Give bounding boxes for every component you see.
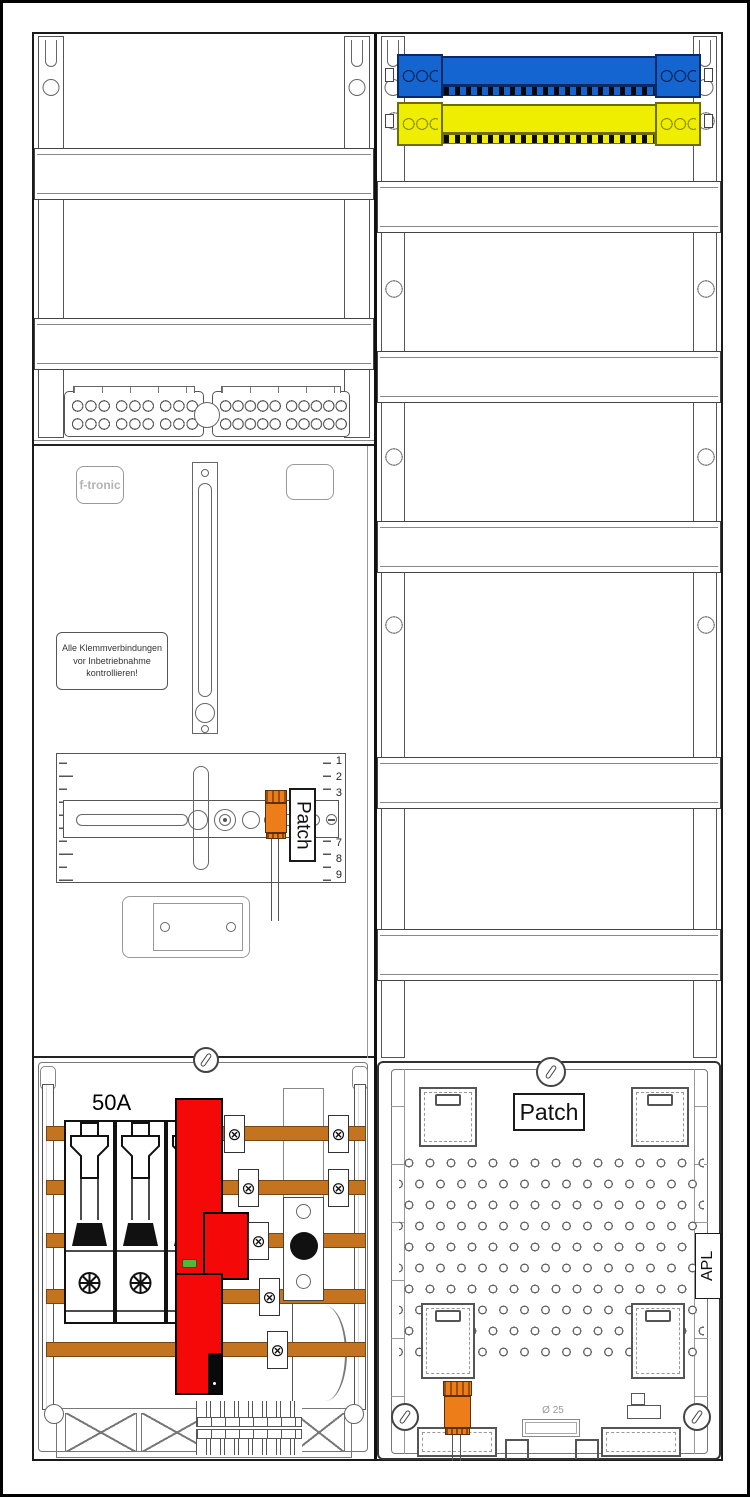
terminal-hole-group <box>115 397 155 433</box>
din-rail <box>34 318 374 370</box>
cable-cutout-tall <box>631 1303 685 1379</box>
patch-wire <box>271 839 272 921</box>
cable-cutout-tall <box>421 1303 475 1379</box>
terminal-hole-group <box>159 397 199 433</box>
right-field: Patch APL Ø 25 <box>377 34 721 1459</box>
apl-terminal-block <box>443 1381 472 1443</box>
brand-label: f-tronic <box>79 478 120 492</box>
terminal-hole-group <box>71 397 111 433</box>
gland-hole <box>290 1232 318 1260</box>
diameter-label: Ø 25 <box>525 1405 581 1416</box>
apl-compartment: Patch APL Ø 25 <box>377 1061 721 1460</box>
meter-cabinet-technical-drawing: f-tronic Alle Klemmverbindungen vor Inbe… <box>0 0 750 1497</box>
left-field: f-tronic Alle Klemmverbindungen vor Inbe… <box>34 34 377 1459</box>
sls-switch-lower <box>175 1273 223 1395</box>
apl-wire <box>452 1435 453 1461</box>
ruler-number: 9 <box>336 870 342 881</box>
bracket-hole <box>201 725 209 733</box>
diameter-cutout <box>522 1419 580 1437</box>
screw-terminal-icon <box>238 1169 259 1207</box>
meter-mounting-plate: 1 2 3 7 8 9 <box>56 753 346 883</box>
din-rail <box>377 351 721 403</box>
busbar-clip <box>385 68 394 82</box>
screw-terminal-icon <box>224 1115 245 1153</box>
mounting-rail-left <box>38 36 64 438</box>
corner-latch <box>683 1403 711 1431</box>
screw-terminal-icon <box>259 1278 280 1316</box>
warning-text-line3: kontrollieren! <box>86 667 138 680</box>
warning-text-line2: vor Inbetriebnahme <box>73 655 151 668</box>
cover-hole <box>226 922 236 932</box>
terminal-block-right <box>212 391 350 437</box>
din-rail <box>34 148 374 200</box>
blank-plate <box>286 464 334 500</box>
bracket-detail <box>627 1393 663 1419</box>
fixing-hole <box>194 402 220 428</box>
busbar-clip <box>704 114 713 128</box>
shelf-line <box>34 440 374 441</box>
pe-busbar-yellow <box>397 100 701 148</box>
cable-cutout <box>631 1087 689 1147</box>
connection-compartment: 50A <box>34 1058 374 1459</box>
mounting-rail-right <box>344 36 370 438</box>
cable-gland <box>283 1197 324 1301</box>
busbar-endcap <box>655 102 701 146</box>
din-rail <box>377 521 721 573</box>
panel-edge-line <box>367 446 368 1058</box>
ruler-number: 3 <box>336 788 342 799</box>
left-top-section <box>34 34 374 446</box>
ruler-number: 2 <box>336 772 342 783</box>
din-rail <box>377 929 721 981</box>
ruler-number: 8 <box>336 854 342 865</box>
vertical-adjust-slot <box>193 766 209 870</box>
terminal-block-left <box>64 391 204 437</box>
amperage-label: 50A <box>92 1090 131 1116</box>
patch-wire <box>278 839 279 921</box>
cover-latch <box>193 1047 219 1073</box>
corner-fixing <box>344 1404 364 1424</box>
cutout-slot <box>647 1094 673 1106</box>
terminal-hole-group <box>285 397 347 433</box>
patch-terminal-block <box>265 790 287 848</box>
adjustment-bracket <box>192 462 218 734</box>
terminal-hole-group <box>219 397 281 433</box>
slider-screw-icon <box>326 814 337 825</box>
cabinet-outline: f-tronic Alle Klemmverbindungen vor Inbe… <box>32 32 723 1461</box>
ruler-number: 7 <box>336 838 342 849</box>
patch-label-right: Patch <box>513 1093 585 1131</box>
apl-label: APL <box>695 1233 721 1299</box>
busbar-endcap <box>655 54 701 98</box>
neutral-busbar-blue <box>397 54 701 100</box>
screw-terminal-icon <box>328 1115 349 1153</box>
small-u-cutout <box>505 1439 529 1459</box>
ruler-number: 1 <box>336 756 342 767</box>
cover-hole <box>160 922 170 932</box>
bracket-hole <box>195 703 215 723</box>
center-target <box>214 809 236 831</box>
apl-cover-latch <box>536 1057 566 1087</box>
sls-switch-side <box>203 1212 249 1280</box>
bottom-cutout <box>601 1427 681 1457</box>
terminal-strip <box>196 1401 302 1455</box>
bracket-hole <box>201 469 209 477</box>
screw-terminal-icon <box>267 1331 288 1369</box>
switch-lever-slot <box>208 1353 221 1393</box>
slider-slot <box>76 814 188 826</box>
meter-panel-section: f-tronic Alle Klemmverbindungen vor Inbe… <box>34 446 374 1058</box>
screw-terminal-icon <box>328 1169 349 1207</box>
busbar-clip <box>704 68 713 82</box>
busbar-endcap <box>397 102 443 146</box>
screw-terminal-icon <box>248 1222 269 1260</box>
patch-label-left: Patch <box>289 788 316 862</box>
corner-latch <box>391 1403 419 1431</box>
warning-plate: Alle Klemmverbindungen vor Inbetriebnahm… <box>56 632 168 690</box>
busbar-endcap <box>397 54 443 98</box>
corner-fixing <box>44 1404 64 1424</box>
cable-cutout <box>419 1087 477 1147</box>
slider-hole <box>242 811 260 829</box>
small-u-cutout <box>575 1439 599 1459</box>
warning-text-line1: Alle Klemmverbindungen <box>62 642 162 655</box>
lower-cover-plate <box>122 896 250 958</box>
cutout-slot <box>435 1094 461 1106</box>
busbar-clip <box>385 114 394 128</box>
brand-plate: f-tronic <box>76 466 124 504</box>
bracket-slot <box>198 483 212 697</box>
cutout-slot <box>435 1310 461 1322</box>
apl-wire <box>460 1435 461 1461</box>
din-rail <box>377 181 721 233</box>
status-indicator-green <box>182 1259 197 1268</box>
cutout-slot <box>645 1310 671 1322</box>
din-rail <box>377 757 721 809</box>
